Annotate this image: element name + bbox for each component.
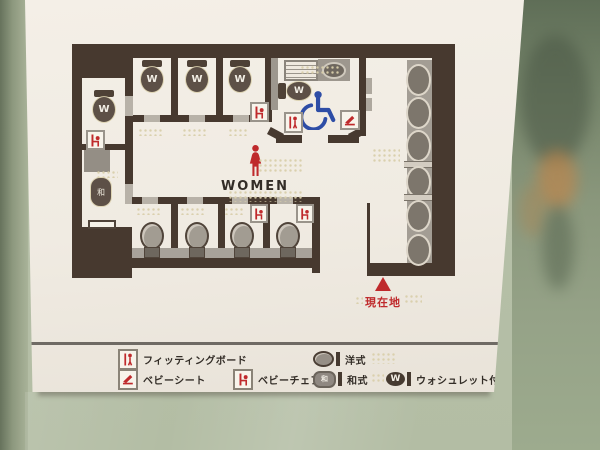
stall-door: [233, 115, 249, 122]
squat-toilet-icon: 和: [91, 178, 111, 206]
utility-area: [84, 150, 110, 172]
toilet-bowl: [313, 351, 334, 367]
braille-dots: [228, 128, 248, 136]
braille-dots: [258, 158, 304, 172]
toilet-bowl: [276, 222, 300, 250]
braille-dots: [355, 296, 363, 304]
toilet-bowl: [185, 222, 209, 250]
fitting-board-icon: [118, 349, 138, 370]
restroom-map-signboard: W 和 W W W: [25, 0, 524, 392]
toilet-tank: [234, 247, 250, 258]
toilet-tank: [144, 247, 160, 258]
baby-chair-icon: [250, 204, 268, 223]
toilet-tank: [407, 372, 411, 386]
legend-item-fitting-board: フィッティングボード: [118, 349, 247, 369]
stall-door: [189, 115, 205, 122]
wall-bottom-right: [367, 263, 455, 276]
braille-dots: [180, 207, 204, 215]
washlet-toilet-icon: W: [140, 60, 164, 92]
washlet-letter: W: [98, 104, 109, 115]
legend-label: フィッティングボード: [143, 352, 247, 367]
glass-reflection-panel: [512, 0, 600, 450]
legend-label: 和式: [347, 372, 368, 387]
baby-sheet-icon: [340, 110, 360, 130]
wall-entrance-partition: [367, 203, 370, 263]
toilet-icon: [185, 222, 209, 258]
toilet-icon: [230, 222, 254, 258]
legend-label: ウォシュレット付: [416, 372, 500, 387]
stall-door: [125, 96, 133, 116]
reflection-dark-figure: [542, 205, 574, 290]
photo-of-restroom-map-sign: W 和 W W W: [0, 0, 600, 450]
stall-door: [142, 197, 158, 204]
toilet-tank: [280, 247, 296, 258]
toilet-bowl: [230, 222, 254, 250]
wall-top-left-block: [72, 44, 132, 78]
toilet-tank: [142, 60, 162, 67]
floorplan: W 和 W W W: [72, 44, 455, 314]
baby-chair-icon: [250, 102, 269, 122]
braille-dots: [182, 128, 208, 136]
toilet-tank: [338, 372, 342, 386]
toilet-tank: [187, 60, 207, 67]
legend-label: ベビーシート: [143, 372, 206, 387]
squat-toilet-bowl: 和: [313, 371, 336, 388]
washlet-letter: W: [146, 74, 157, 85]
reflection-dark-shape: [520, 35, 590, 165]
braille-dots: [371, 352, 395, 364]
legend-label: ベビーチェア: [258, 372, 321, 387]
door-mark: [366, 98, 372, 111]
sink-icon: [406, 130, 431, 162]
wall-bottom-stalls-back: [132, 258, 319, 268]
toilet-bowl: [140, 222, 164, 250]
braille-dots: [371, 373, 384, 383]
legend-item-western-style: 洋式: [313, 349, 366, 369]
toilet-tank: [336, 352, 340, 366]
baby-chair-icon: [233, 369, 253, 390]
western-toilet-icon: [313, 351, 340, 367]
toilet-icon: [140, 222, 164, 258]
braille-dots: [138, 128, 164, 136]
braille-dots: [228, 190, 304, 202]
toilet-tank: [278, 83, 286, 99]
step-mat: [88, 220, 116, 229]
current-location-arrow: [375, 277, 391, 291]
sink-icon: [406, 234, 431, 266]
wall-left-column-inner: [125, 44, 133, 200]
washlet-toilet-icon: W: [185, 60, 209, 92]
sink-icon: [406, 97, 431, 129]
wall-stall-divider: [216, 58, 223, 115]
toilet-tank: [230, 60, 250, 67]
stall-door: [144, 115, 160, 122]
legend-item-baby-sheet: ベビーシート: [118, 369, 206, 389]
stall-door: [187, 197, 203, 204]
wall-edge-left: [0, 0, 28, 450]
washlet-toilet-icon: W: [228, 60, 252, 92]
braille-dots: [136, 207, 160, 215]
reflection-light-blob: [520, 185, 546, 237]
legend-divider-line: [25, 342, 524, 345]
japanese-style-letter: 和: [97, 187, 105, 198]
wall-accessible-left: [271, 58, 278, 110]
braille-dots: [224, 207, 244, 215]
wall-stall-divider: [171, 58, 178, 115]
legend-item-baby-chair: ベビーチェア: [233, 369, 321, 389]
wall-below-sign: [25, 392, 515, 450]
toilet-tank: [94, 90, 114, 97]
legend-item-japanese-style: 和 和式: [313, 369, 368, 389]
washlet-letter: W: [386, 372, 405, 386]
wall-bottom-left-block: [72, 227, 132, 278]
baby-sheet-icon: [118, 369, 138, 390]
washlet-toilet-icon: W: [92, 90, 116, 122]
washlet-letter: W: [234, 74, 245, 85]
toilet-icon: [276, 222, 300, 258]
japanese-toilet-icon: 和: [313, 371, 342, 388]
braille-dots: [96, 170, 118, 178]
toilet-tank: [189, 247, 205, 258]
fitting-board-icon: [284, 112, 303, 133]
braille-dots: [300, 65, 340, 74]
legend-label: 洋式: [345, 352, 366, 367]
baby-chair-icon: [296, 204, 314, 223]
braille-dots: [372, 148, 400, 164]
legend-item-washlet: W ウォシュレット付: [386, 369, 500, 389]
wall-right: [432, 44, 455, 273]
washlet-icon: W: [386, 372, 411, 386]
wall-accessible-right: [359, 58, 366, 136]
washlet-letter: W: [191, 74, 202, 85]
sink-icon: [406, 64, 431, 96]
baby-chair-icon: [86, 130, 105, 150]
door-mark: [366, 78, 372, 94]
sink-icon: [406, 200, 431, 232]
braille-dots: [404, 294, 422, 304]
